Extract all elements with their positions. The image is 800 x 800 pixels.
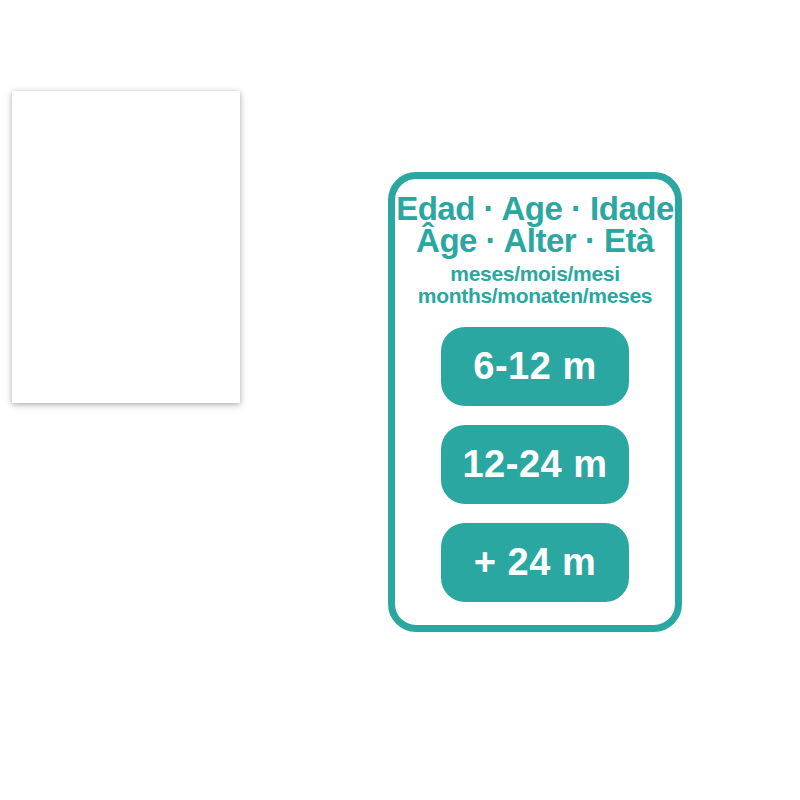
age-card-title: Edad · Age · Idade Âge · Alter · Età — [396, 193, 674, 257]
age-card-title-line1: Edad · Age · Idade — [396, 193, 674, 225]
age-range-button-24m-plus[interactable]: + 24 m — [441, 523, 629, 602]
age-card-title-line2: Âge · Alter · Età — [396, 225, 674, 257]
age-range-button-stack: 6-12 m 12-24 m + 24 m — [441, 327, 629, 602]
age-card-subtitle-line1: meses/mois/mesi — [418, 263, 652, 285]
age-card-subtitle-line2: months/monaten/meses — [418, 285, 652, 307]
age-range-card: Edad · Age · Idade Âge · Alter · Età mes… — [388, 172, 682, 632]
age-card-subtitle: meses/mois/mesi months/monaten/meses — [418, 263, 652, 307]
blank-image-placeholder — [12, 91, 240, 403]
age-range-button-12-24m[interactable]: 12-24 m — [441, 425, 629, 504]
page-canvas: Edad · Age · Idade Âge · Alter · Età mes… — [0, 0, 800, 800]
age-range-button-6-12m[interactable]: 6-12 m — [441, 327, 629, 406]
